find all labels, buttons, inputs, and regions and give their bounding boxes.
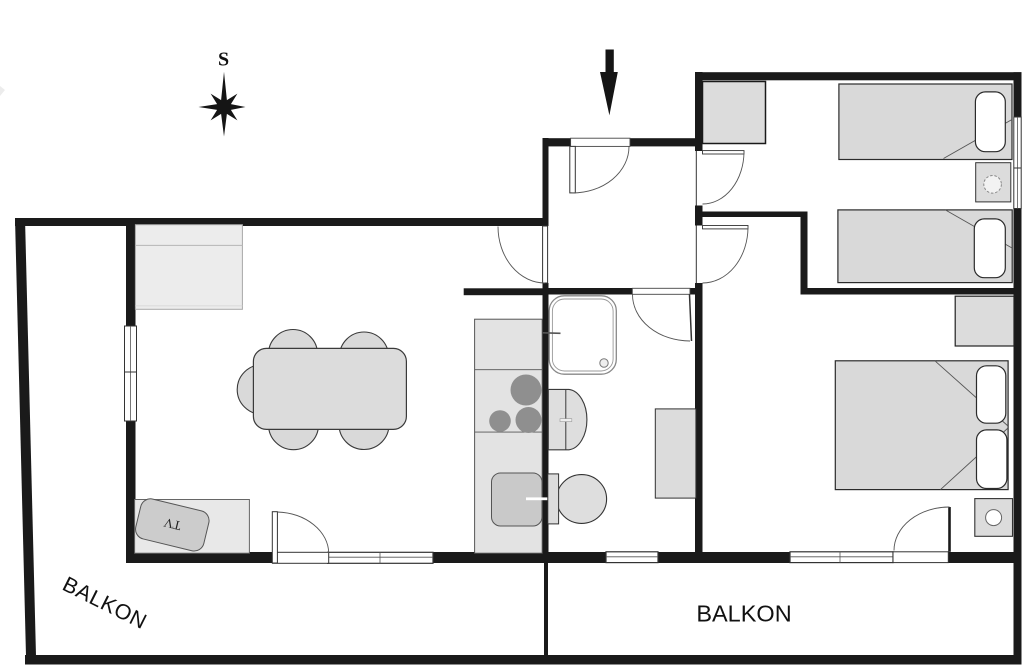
svg-text:BALKON: BALKON bbox=[696, 601, 791, 627]
svg-text:S: S bbox=[218, 49, 229, 71]
